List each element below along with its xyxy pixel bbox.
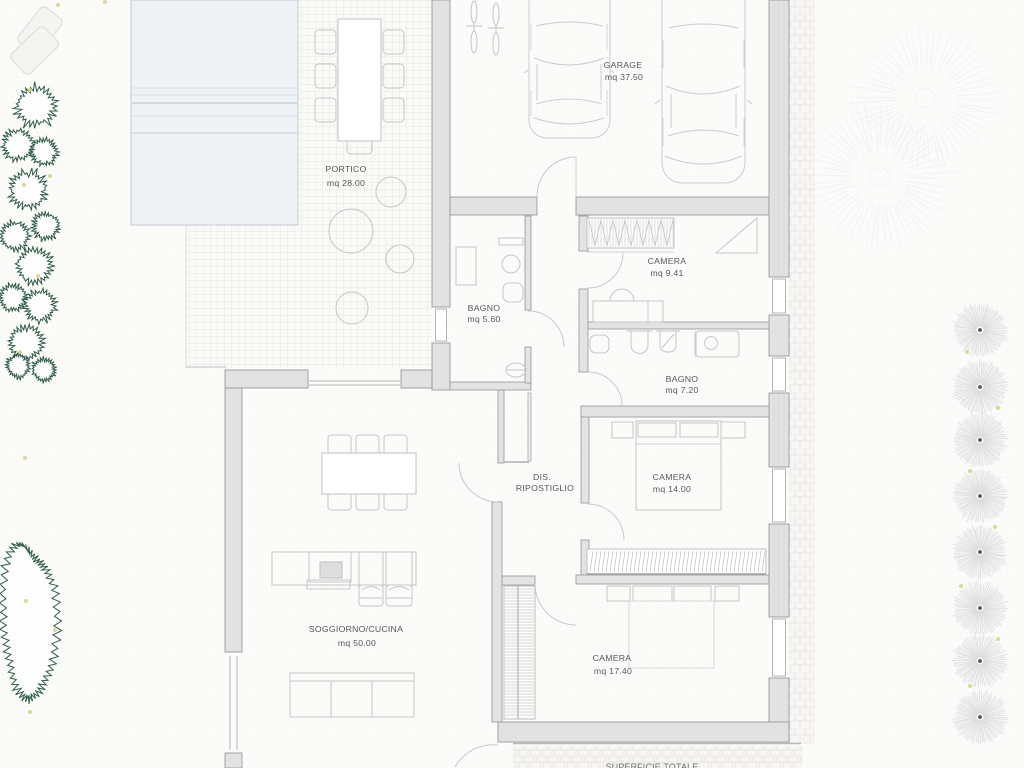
svg-text:GARAGE: GARAGE	[604, 60, 643, 70]
svg-text:mq 17.40: mq 17.40	[594, 666, 632, 676]
svg-text:CAMERA: CAMERA	[648, 256, 687, 266]
svg-text:SOGGIORNO/CUCINA: SOGGIORNO/CUCINA	[309, 624, 403, 634]
svg-text:PORTICO: PORTICO	[325, 164, 366, 174]
svg-text:CAMERA: CAMERA	[593, 653, 632, 663]
svg-text:mq 7.20: mq 7.20	[665, 385, 698, 395]
svg-text:BAGNO: BAGNO	[468, 303, 501, 313]
svg-text:RIPOSTIGLIO: RIPOSTIGLIO	[516, 483, 574, 493]
svg-text:mq 14.00: mq 14.00	[653, 484, 691, 494]
svg-text:mq 37.50: mq 37.50	[605, 72, 643, 82]
svg-text:mq 5.60: mq 5.60	[467, 314, 500, 324]
svg-text:DIS.: DIS.	[533, 472, 551, 482]
svg-text:mq 50.00: mq 50.00	[338, 638, 376, 648]
svg-text:BAGNO: BAGNO	[666, 374, 699, 384]
svg-text:mq 28.00: mq 28.00	[327, 178, 365, 188]
svg-text:mq 9.41: mq 9.41	[650, 268, 683, 278]
svg-text:CAMERA: CAMERA	[653, 472, 692, 482]
svg-text:SUPERFICIE TOTALE: SUPERFICIE TOTALE	[606, 762, 699, 768]
